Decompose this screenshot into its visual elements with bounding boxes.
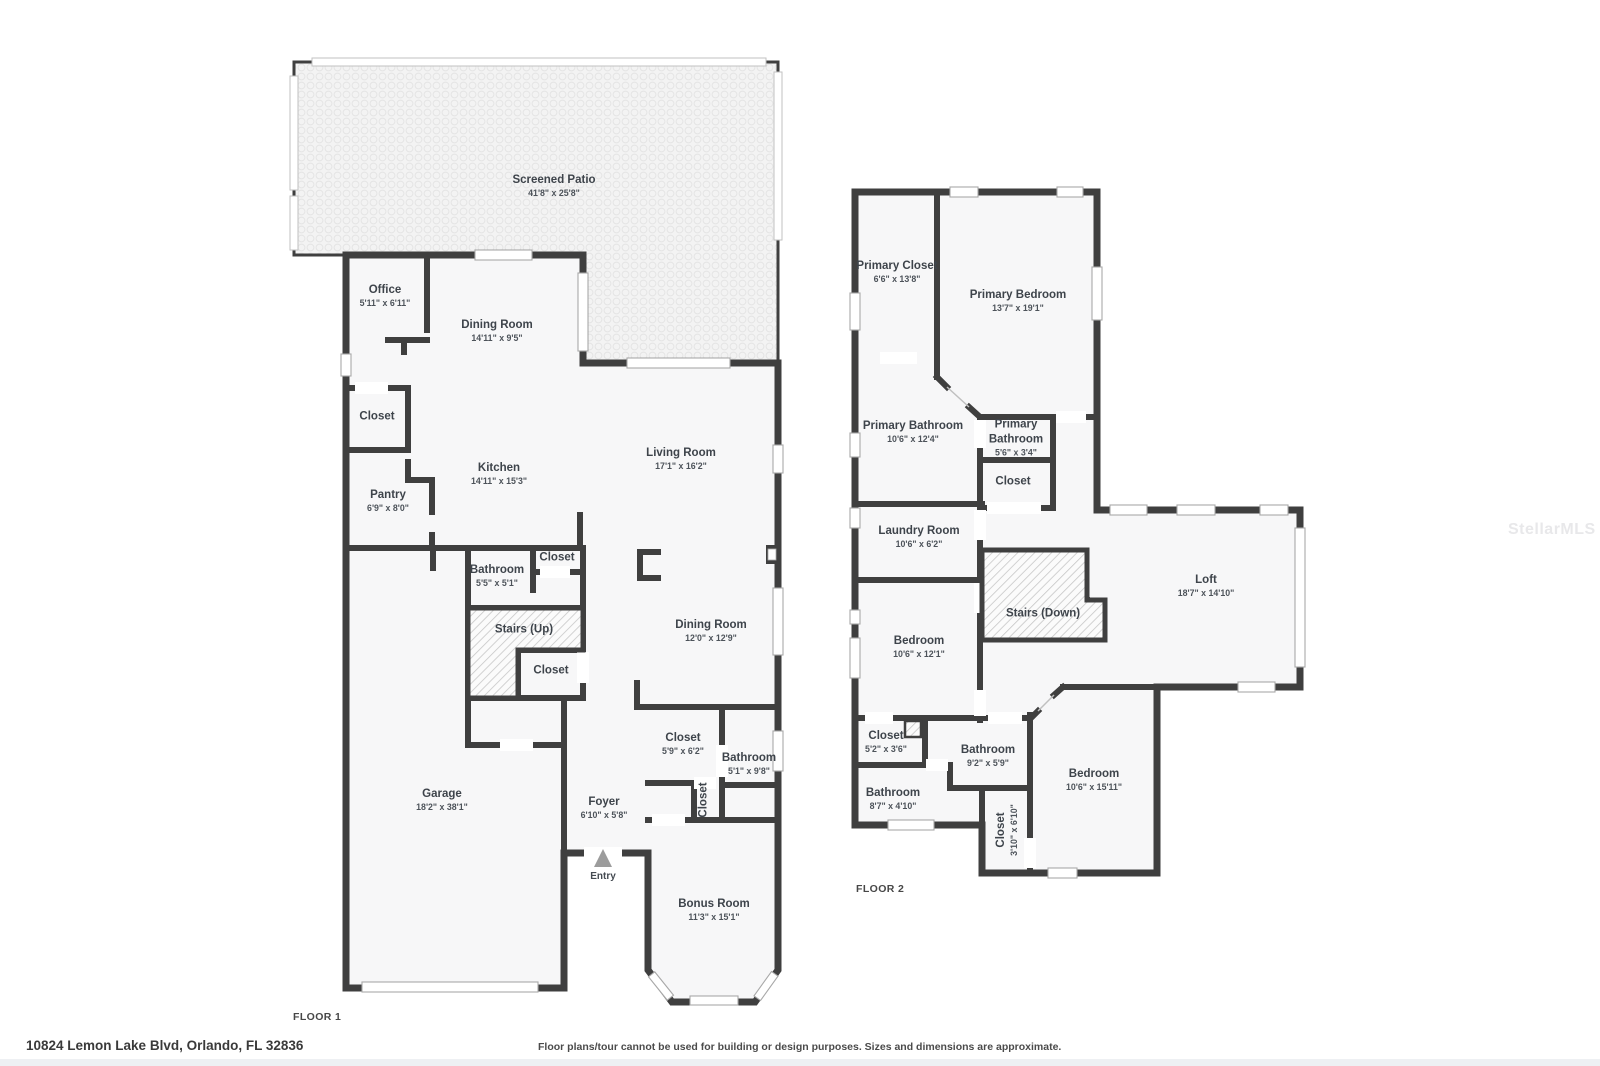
floorplan-canvas: Screened Patio41'8" x 25'8"Office5'11" x… <box>0 0 1600 1066</box>
closet-chase <box>905 721 921 737</box>
disclaimer: Floor plans/tour cannot be used for buil… <box>538 1041 1061 1053</box>
living-room-wall-stub <box>766 545 778 564</box>
address: 10824 Lemon Lake Blvd, Orlando, FL 32836 <box>26 1038 303 1053</box>
footer-strip <box>0 1059 1600 1066</box>
watermark: StellarMLS <box>1508 521 1596 539</box>
floor2-plan <box>850 187 1305 878</box>
stairs-down-hatch <box>982 550 1105 640</box>
floor1-label: FLOOR 1 <box>293 1011 341 1023</box>
entry-label: Entry <box>590 871 616 882</box>
floor2-label: FLOOR 2 <box>856 883 904 895</box>
floor1-plan <box>290 58 783 1005</box>
floorplan-graphic <box>0 0 1600 1066</box>
floor2-footprint <box>855 192 1300 873</box>
